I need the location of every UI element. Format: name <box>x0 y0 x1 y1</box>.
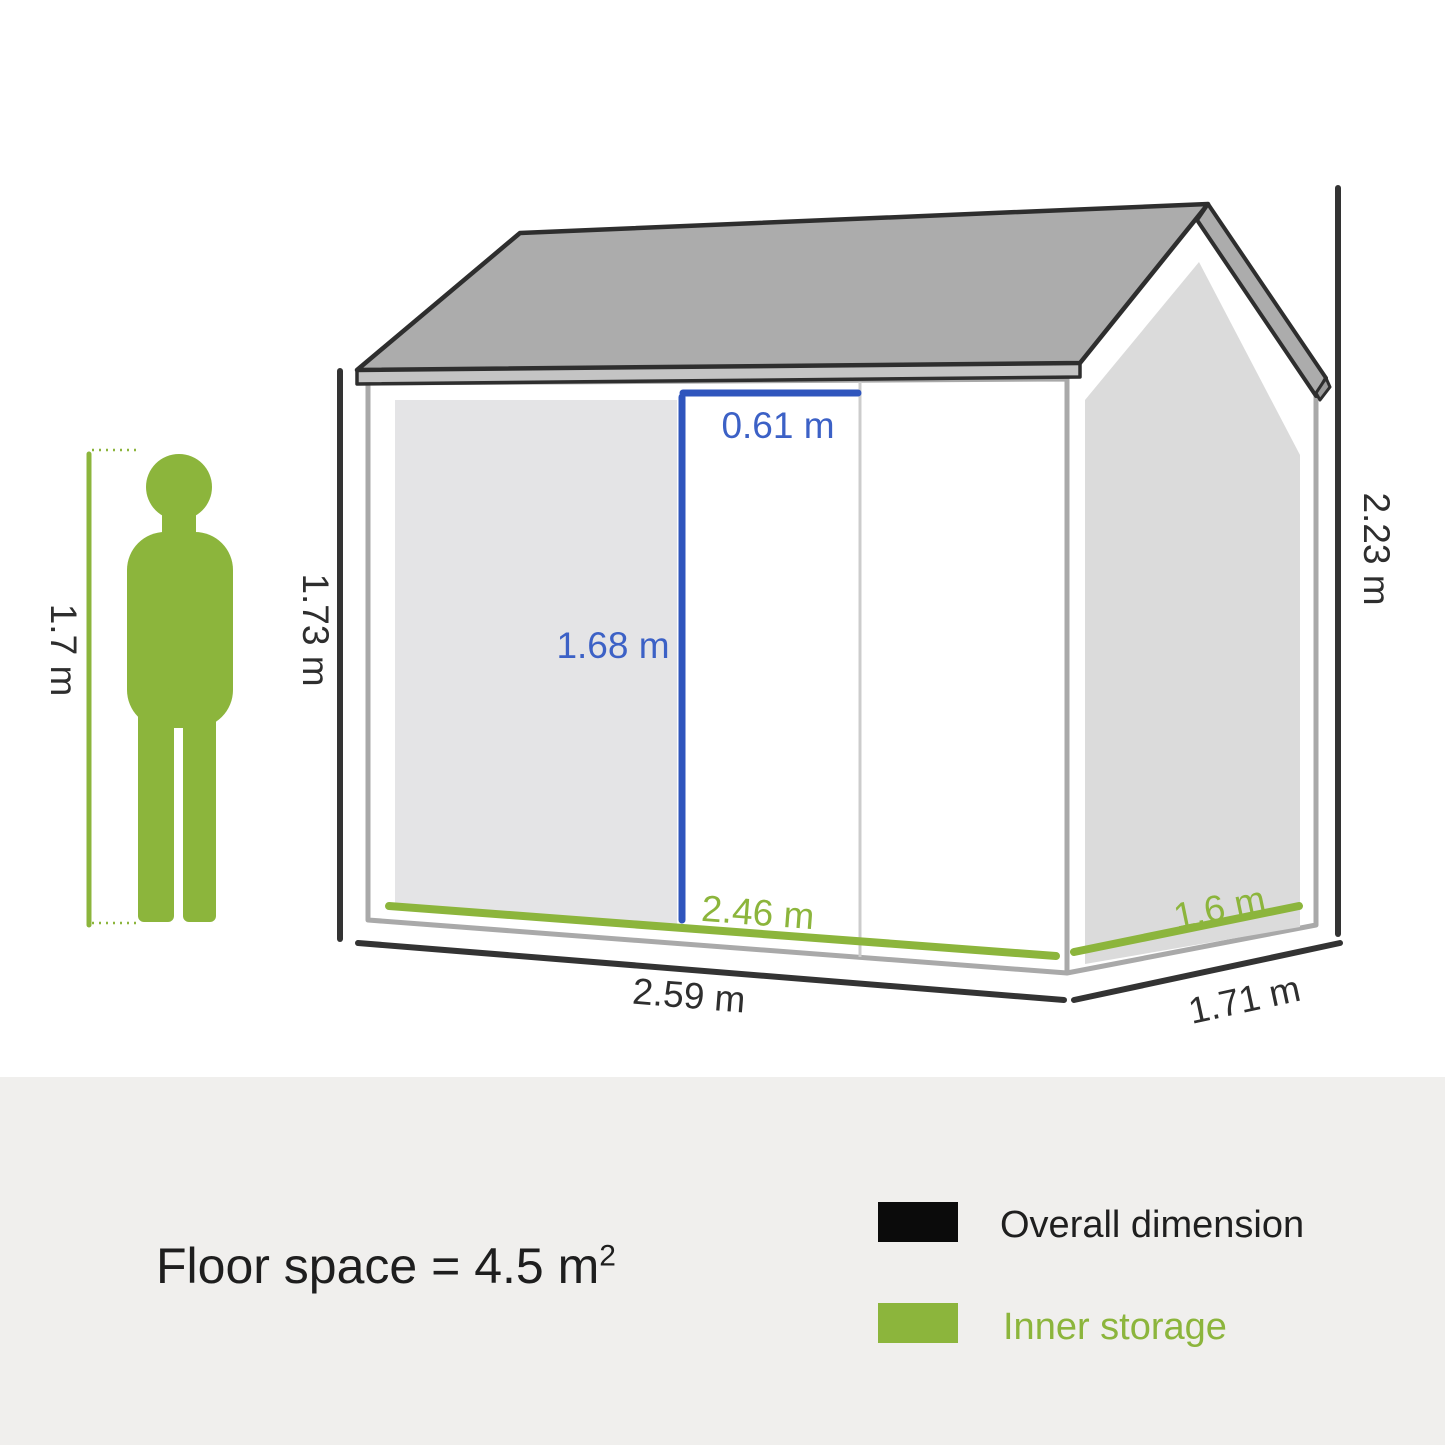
inner-storage-swatch <box>878 1303 958 1343</box>
floor-space-text: Floor space = 4.5 m2 <box>156 1237 616 1295</box>
floor-space-superscript: 2 <box>599 1239 616 1272</box>
front-height-label: 1.73 m <box>295 573 336 686</box>
person-right-leg <box>183 688 216 922</box>
overall-width-label: 2.59 m <box>631 971 747 1021</box>
info-band: Floor space = 4.5 m2 Overall dimension I… <box>0 1077 1445 1445</box>
door-width-label: 0.61 m <box>721 405 834 446</box>
overall-dimension-legend-label: Overall dimension <box>1000 1204 1304 1247</box>
shed-gable-face <box>1085 262 1300 964</box>
shed-dimension-diagram: 1.7 m 0.61 m 1.68 m 2.46 m 1.6 m 1.73 m … <box>0 0 1445 1445</box>
overall-dimension-swatch-rect <box>878 1202 958 1242</box>
person-head <box>146 454 212 520</box>
person-figure <box>127 454 233 922</box>
overall-depth-label: 1.71 m <box>1185 968 1304 1032</box>
diagram-svg: 1.7 m 0.61 m 1.68 m 2.46 m 1.6 m 1.73 m … <box>0 0 1445 1080</box>
door-height-label: 1.68 m <box>556 625 669 666</box>
overall-dimension-swatch <box>878 1202 958 1242</box>
inner-storage-legend-label: Inner storage <box>1003 1306 1227 1349</box>
overall-height-label: 2.23 m <box>1356 492 1397 605</box>
inner-width-label: 2.46 m <box>700 888 816 937</box>
inner-storage-swatch-rect <box>878 1303 958 1343</box>
person-height-label: 1.7 m <box>43 604 84 697</box>
floor-space-main: Floor space = 4.5 m <box>156 1238 599 1294</box>
person-left-leg <box>138 688 174 922</box>
roof-front-plane <box>357 204 1208 370</box>
